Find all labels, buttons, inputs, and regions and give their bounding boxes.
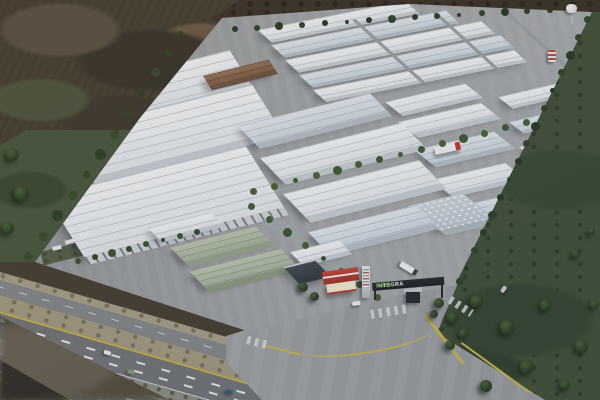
tree — [590, 300, 599, 309]
water-tower-leg — [571, 12, 573, 24]
tree — [480, 380, 492, 392]
gate-post — [374, 289, 376, 300]
tree — [572, 250, 580, 258]
tree — [2, 222, 14, 234]
tree — [459, 329, 468, 338]
water-tower — [566, 4, 577, 13]
tree-row — [24, 252, 33, 261]
tree — [500, 320, 515, 335]
guard-booth — [406, 292, 420, 303]
tree — [6, 148, 19, 161]
tree — [298, 282, 308, 292]
tree-row — [232, 26, 238, 32]
aerial-render-industrial-park: INTEGRA PARK — [0, 0, 600, 400]
tree — [470, 295, 483, 308]
tree — [445, 340, 455, 350]
pylon-logo-panel — [363, 269, 369, 287]
tree — [588, 228, 595, 235]
tree — [430, 310, 438, 318]
tree-row — [75, 258, 81, 264]
roof-ridge — [323, 272, 359, 278]
tree — [14, 186, 29, 201]
gate-sign-suffix: PARK — [376, 282, 393, 289]
tree — [540, 300, 551, 311]
tree-row — [248, 203, 255, 210]
tree-row — [584, 16, 591, 23]
tree — [560, 380, 570, 390]
tree — [447, 312, 458, 323]
tree — [310, 292, 319, 301]
gate-post — [441, 280, 443, 298]
tree-row — [250, 188, 257, 195]
tree — [434, 298, 444, 308]
tree — [520, 360, 534, 374]
striped-tank — [548, 50, 556, 62]
monument-pylon — [362, 266, 370, 298]
tree — [575, 340, 588, 353]
